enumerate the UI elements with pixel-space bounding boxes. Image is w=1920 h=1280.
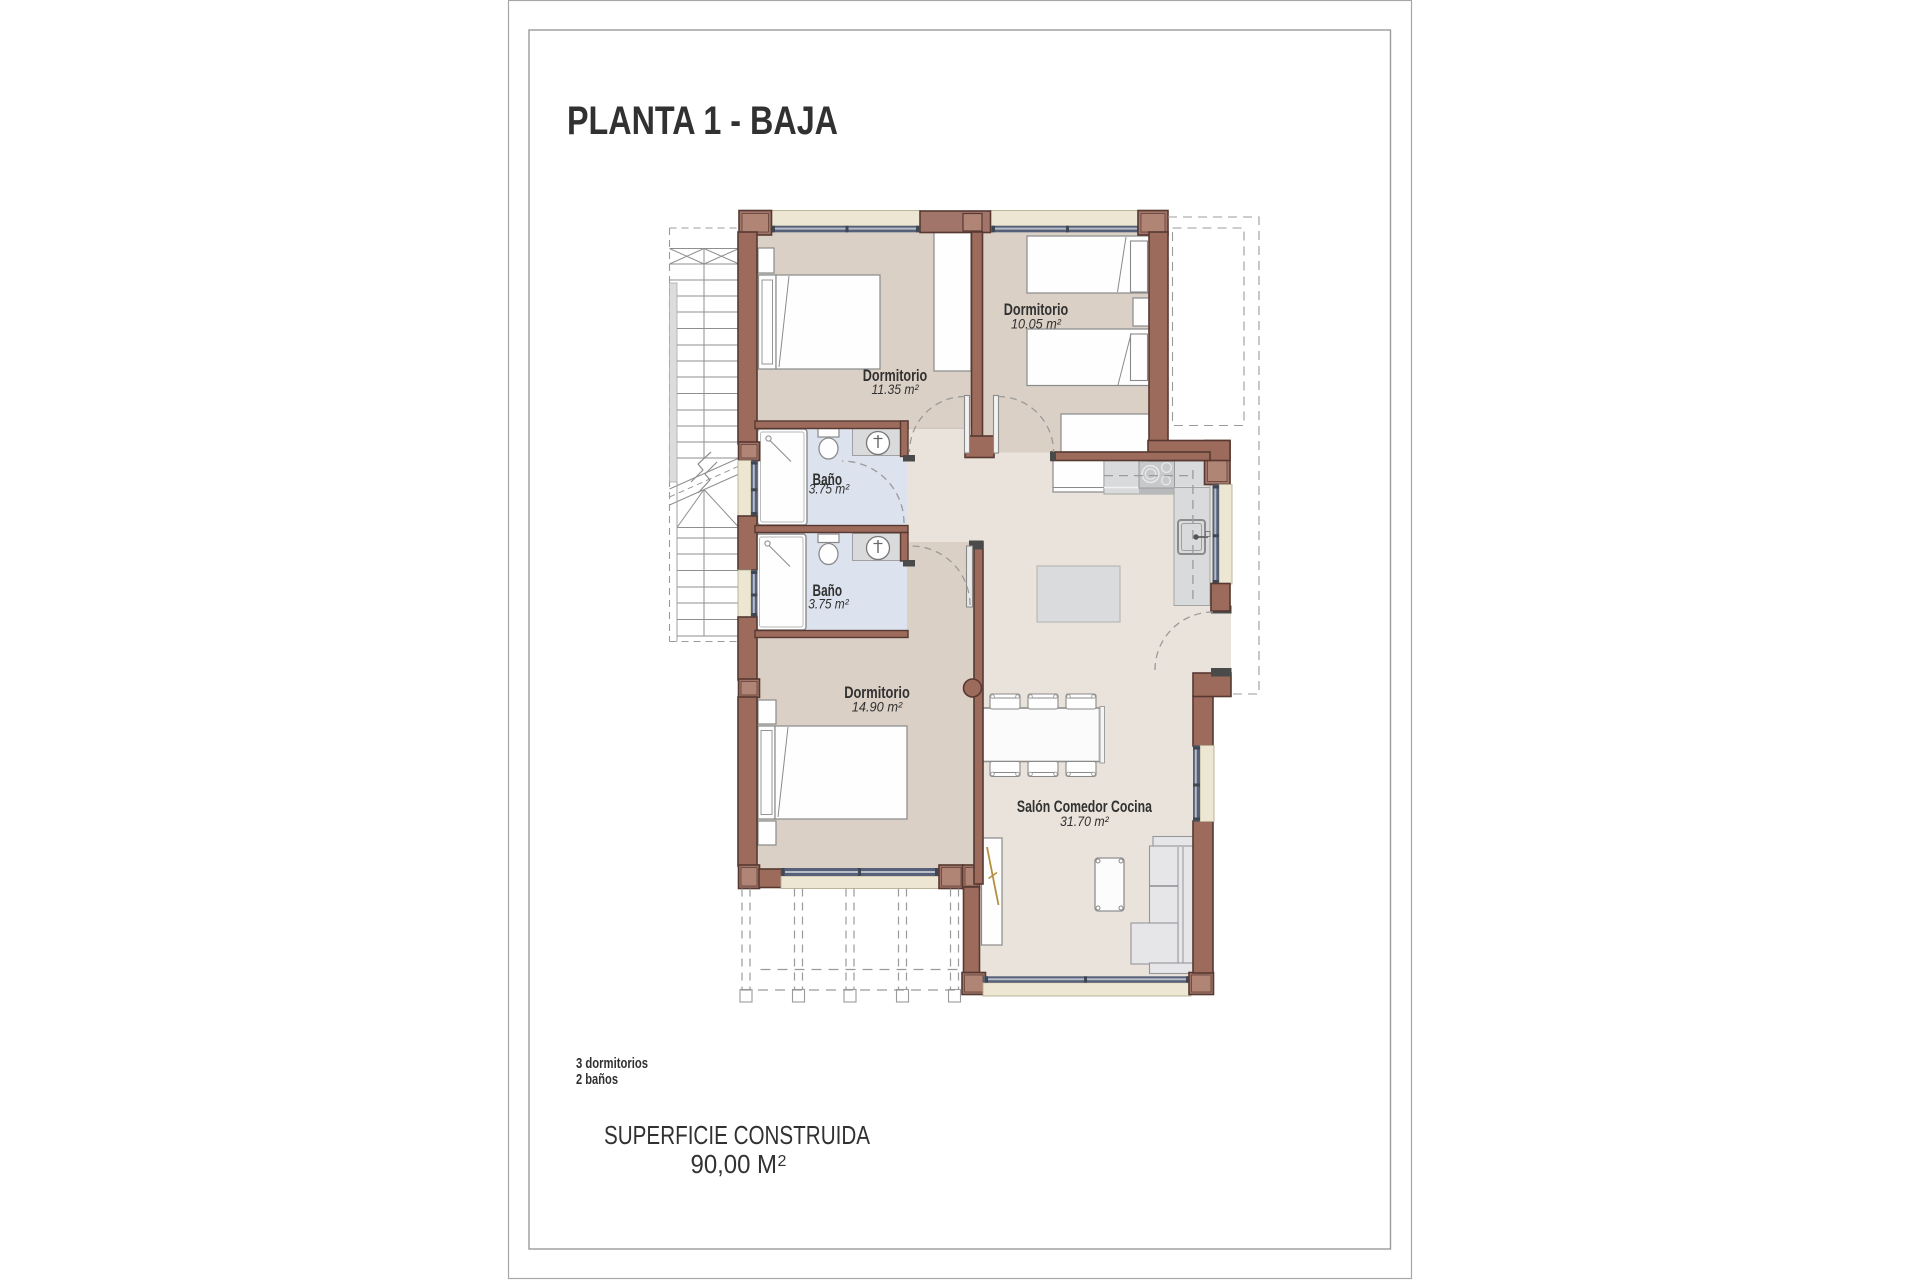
svg-text:SUPERFICIE CONSTRUIDA: SUPERFICIE CONSTRUIDA — [604, 1120, 871, 1150]
svg-text:11.35 m²: 11.35 m² — [872, 382, 919, 397]
svg-text:10.05 m²: 10.05 m² — [1011, 317, 1061, 332]
svg-text:3.75 m²: 3.75 m² — [808, 597, 849, 612]
svg-text:3 dormitorios: 3 dormitorios — [576, 1056, 648, 1072]
svg-text:31.70 m²: 31.70 m² — [1060, 814, 1109, 829]
svg-text:90,00 M: 90,00 M — [691, 1149, 778, 1179]
svg-text:PLANTA 1 - BAJA: PLANTA 1 - BAJA — [567, 99, 838, 143]
svg-text:2: 2 — [778, 1153, 787, 1170]
svg-text:3.75 m²: 3.75 m² — [809, 482, 850, 497]
svg-text:14.90 m²: 14.90 m² — [852, 700, 903, 715]
svg-text:2 baños: 2 baños — [576, 1072, 618, 1088]
